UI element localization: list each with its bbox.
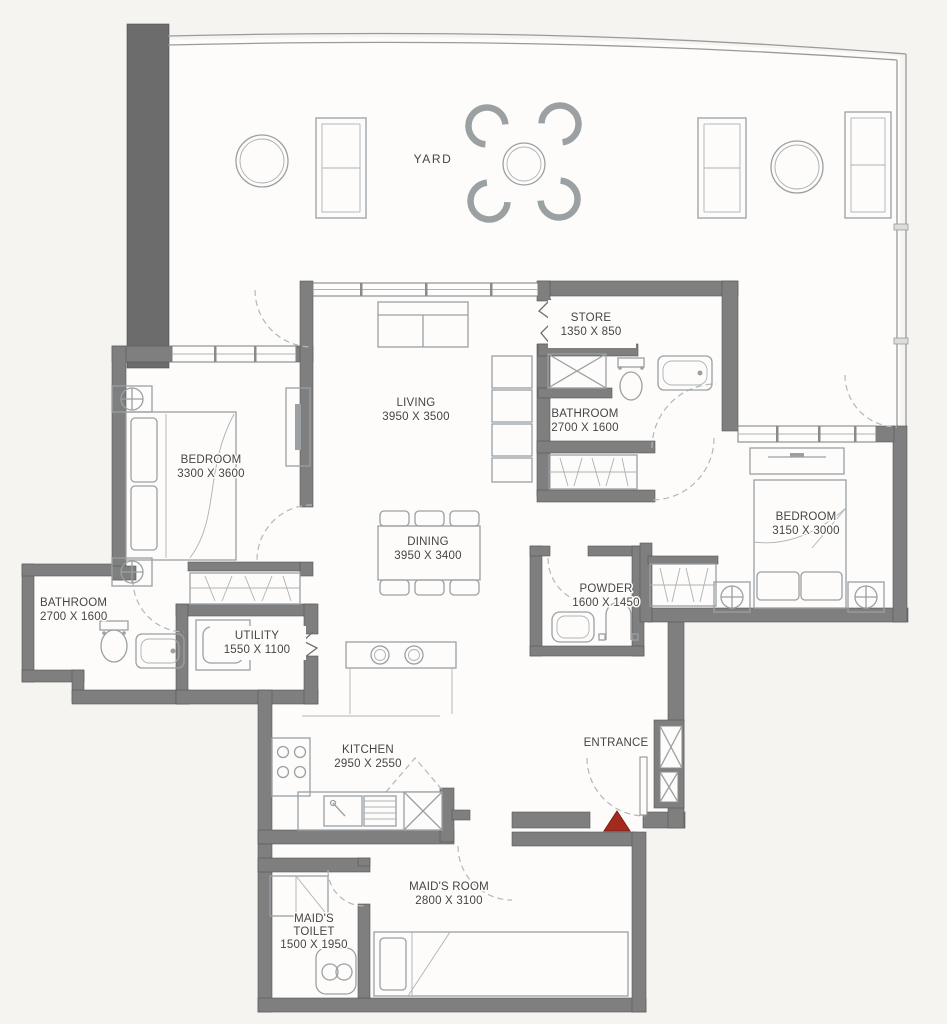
label-powder-dims: 1600 X 1450 <box>572 597 639 609</box>
window-bedroom-right <box>738 426 876 442</box>
rail-joint <box>894 224 908 230</box>
label-kitchen-dims: 2950 X 2550 <box>334 758 401 770</box>
label-utility: UTILITY <box>235 630 279 642</box>
floor-plan-page: YARD LIVING 3950 X 3500 STORE 1350 X 850… <box>0 0 947 1024</box>
label-bathroom-top: BATHROOM <box>551 408 618 420</box>
label-bedroom-right: BEDROOM <box>776 511 837 523</box>
window-bedroom-left <box>172 346 296 362</box>
label-dining: DINING <box>407 536 448 548</box>
label-kitchen: KITCHEN <box>342 744 394 756</box>
store-label-bg <box>548 300 636 348</box>
label-store-dims: 1350 X 850 <box>561 326 622 338</box>
label-powder: POWDER <box>580 583 633 595</box>
label-bedroom-right-dims: 3150 X 3000 <box>772 525 839 537</box>
floor-plan-canvas: YARD LIVING 3950 X 3500 STORE 1350 X 850… <box>0 0 947 1024</box>
planter-wall <box>127 24 169 368</box>
label-maids-toilet-2: TOILET <box>293 926 334 938</box>
label-bathroom-top-dims: 2700 X 1600 <box>551 422 618 434</box>
label-yard: YARD <box>414 152 453 166</box>
shaft-icon <box>404 792 442 830</box>
label-maids-room: MAID'S ROOM <box>409 881 489 893</box>
label-bedroom-left: BEDROOM <box>181 454 242 466</box>
entrance-door-leaf <box>640 757 647 815</box>
label-dining-dims: 3950 X 3400 <box>394 550 461 562</box>
window-living <box>313 283 538 296</box>
label-living: LIVING <box>397 397 436 409</box>
label-entrance: ENTRANCE <box>584 737 649 749</box>
label-maids-toilet-1: MAID'S <box>294 913 334 925</box>
label-maids-room-dims: 2800 X 3100 <box>415 895 482 907</box>
label-bathroom-left: BATHROOM <box>40 597 107 609</box>
rail-joint <box>894 338 908 344</box>
label-store: STORE <box>571 312 612 324</box>
shaft-icon <box>660 726 682 768</box>
label-bedroom-left-dims: 3300 X 3600 <box>177 468 244 480</box>
label-utility-dims: 1550 X 1100 <box>224 644 291 656</box>
shaft-icon <box>660 772 678 802</box>
label-maids-toilet-dims: 1500 X 1950 <box>280 939 347 951</box>
label-living-dims: 3950 X 3500 <box>382 411 449 423</box>
label-bathroom-left-dims: 2700 X 1600 <box>40 611 107 623</box>
